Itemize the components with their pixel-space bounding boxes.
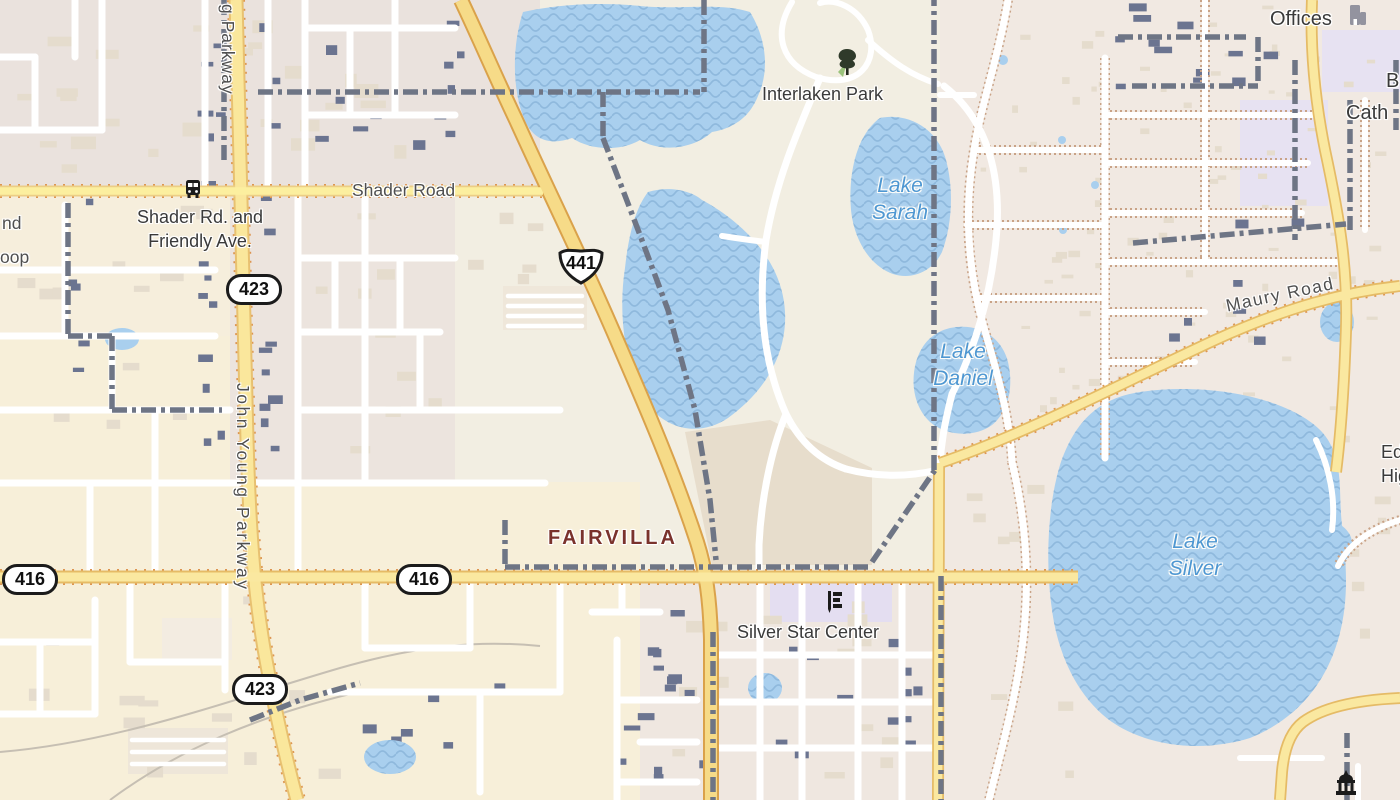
lake-silver-line1: Lake [1140, 528, 1250, 555]
road-label-john-young-parkway: John Young Parkway [232, 383, 253, 591]
bus-stop-label-line2: Friendly Ave. [100, 230, 300, 254]
poi-label-partial-edgewater-high: Edg High [1381, 440, 1400, 489]
map-canvas[interactable]: g Parkway Shader Road Shader Rd. and Fri… [0, 0, 1400, 800]
road-label-partial-oop: oop [0, 247, 29, 268]
route-shield-423-north: 423 [226, 274, 282, 305]
poi-label-silver-star-center: Silver Star Center [737, 622, 879, 643]
lake-silver-line2: Silver [1140, 555, 1250, 582]
lake-daniel-line1: Lake [908, 338, 1018, 365]
lake-label-silver: Lake Silver [1140, 528, 1250, 583]
route-shield-441-number: 441 [556, 253, 606, 274]
road-label-partial-nd: nd [2, 213, 21, 234]
lake-label-daniel: Lake Daniel [908, 338, 1018, 393]
lake-sarah-line1: Lake [845, 172, 955, 199]
edgewater-line2: High [1381, 464, 1400, 488]
road-label-parkway-partial: g Parkway [217, 4, 238, 95]
map-graphics [0, 0, 1400, 800]
school-flag-icon [824, 590, 846, 621]
tree-icon [834, 48, 860, 85]
lake-label-sarah: Lake Sarah [845, 172, 955, 227]
edgewater-line1: Edg [1381, 440, 1400, 464]
bus-stop-label: Shader Rd. and Friendly Ave. [100, 206, 300, 254]
route-shield-416-west: 416 [2, 564, 58, 595]
neighborhood-label-fairvilla: FAIRVILLA [548, 527, 678, 550]
poi-label-interlaken-park: Interlaken Park [762, 84, 883, 105]
lake-daniel-line2: Daniel [908, 365, 1018, 392]
lake-sarah-line2: Sarah [845, 199, 955, 226]
bus-icon [184, 179, 202, 204]
route-shield-416-mid: 416 [396, 564, 452, 595]
bus-stop-label-line1: Shader Rd. and [100, 206, 300, 230]
poi-label-partial-cath: Cath [1346, 102, 1388, 125]
road-label-shader-road: Shader Road [352, 180, 455, 201]
route-shield-423-south: 423 [232, 674, 288, 705]
poi-label-partial-b: B [1386, 70, 1399, 93]
government-building-icon [1332, 770, 1360, 800]
building-icon [1348, 3, 1368, 32]
route-shield-441: 441 [556, 246, 606, 286]
poi-label-offices-partial: Offices [1270, 8, 1332, 31]
